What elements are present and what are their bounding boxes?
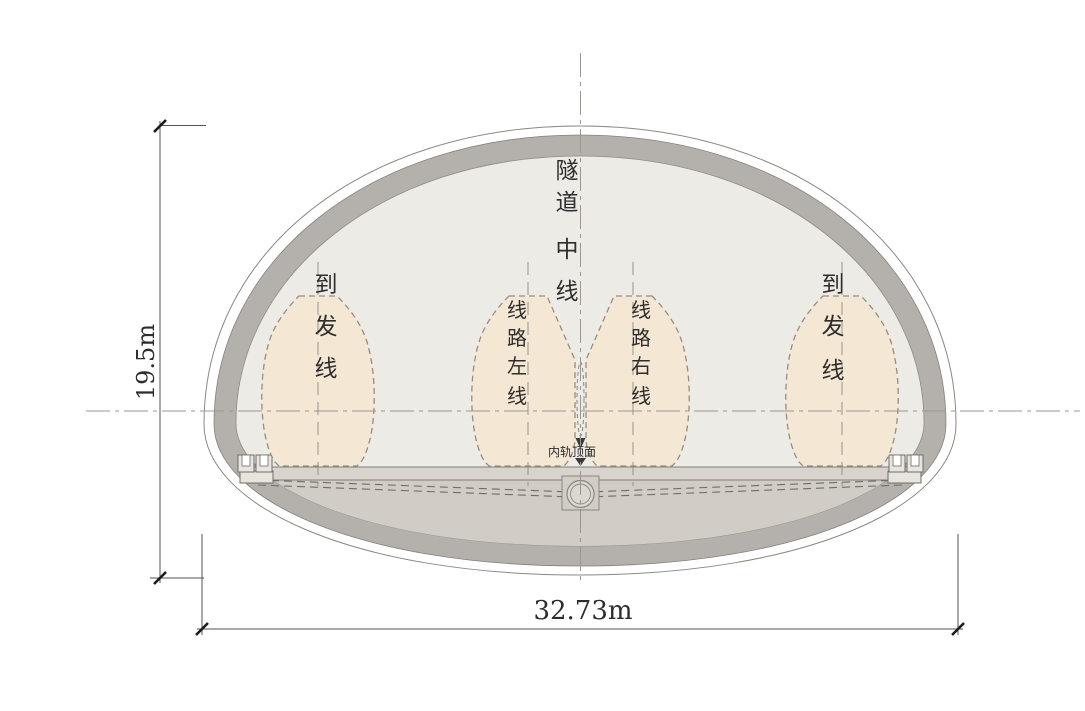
- tunnel-cross-section-page: 19.5m 32.73m 隧 道 中 线 到 发 线 线 路 左 线 线 路 右…: [0, 0, 1085, 711]
- label-char: 路: [507, 326, 527, 350]
- label-char: 发: [822, 314, 845, 340]
- label-char: 线: [507, 298, 527, 322]
- height-dimension-text: 19.5m: [132, 324, 160, 400]
- label-char: 发: [315, 314, 338, 340]
- label-char: 左: [507, 354, 527, 378]
- label-char: 线: [631, 298, 651, 322]
- label-char: 路: [631, 326, 651, 350]
- label-char: 中: [556, 237, 579, 263]
- label-char: 到: [315, 272, 338, 298]
- label-char: 线: [507, 384, 527, 408]
- label-arrival-right: 到 发 线: [822, 272, 845, 384]
- label-char: 线: [556, 279, 579, 305]
- label-char: 线: [315, 356, 338, 382]
- width-dimension-text: 32.73m: [533, 596, 632, 626]
- label-arrival-left: 到 发 线: [315, 272, 338, 382]
- label-char: 到: [822, 272, 845, 298]
- label-char: 隧: [556, 158, 579, 184]
- cable-trough-left: [238, 455, 273, 483]
- label-rail-top-surface: 内轨顶面: [548, 445, 596, 459]
- tunnel-cross-section-diagram: 19.5m 32.73m 隧 道 中 线 到 发 线 线 路 左 线 线 路 右…: [0, 0, 1085, 711]
- label-char: 线: [631, 384, 651, 408]
- height-dimension: 19.5m: [132, 120, 206, 584]
- cable-trough-right: [888, 455, 923, 483]
- label-char: 线: [822, 358, 845, 384]
- label-char: 道: [556, 190, 579, 216]
- label-char: 右: [631, 354, 651, 378]
